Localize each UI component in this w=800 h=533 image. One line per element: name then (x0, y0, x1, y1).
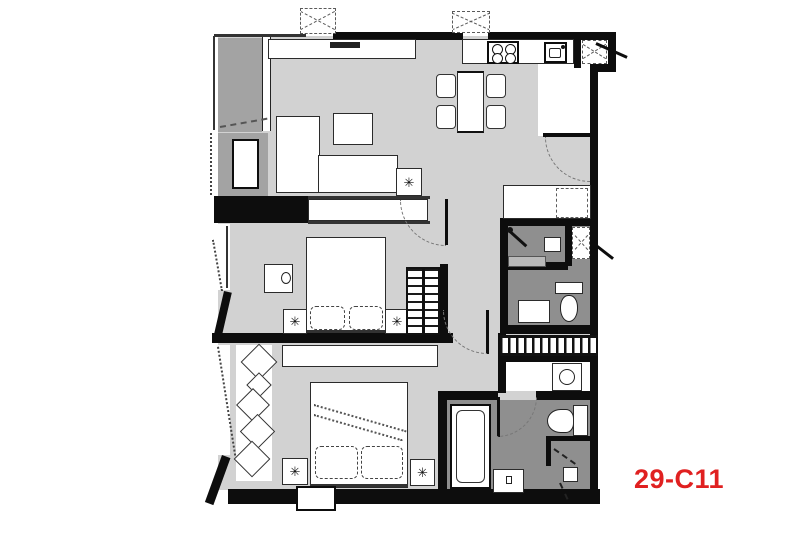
toilet2-tank (573, 405, 588, 436)
sink-mark-icon (506, 476, 512, 484)
nightstand: ✳ (282, 458, 308, 485)
plant-icon: ✳ (404, 176, 415, 189)
faucet-icon (561, 45, 565, 49)
shower-drain (563, 467, 578, 482)
nightstand: ✳ (410, 459, 435, 486)
bathroom2-sink (493, 469, 524, 493)
sink-basin-icon (549, 48, 561, 58)
laundry-ledge-grille (500, 335, 598, 356)
wall-bedroom2-bathroom2 (438, 391, 447, 491)
dining-chair (486, 105, 506, 129)
balcony-table (232, 139, 259, 189)
sofa-section-vertical (276, 116, 320, 193)
plant-icon: ✳ (392, 315, 403, 328)
balcony-railing (210, 133, 213, 195)
wall-shower2-v (546, 436, 551, 466)
burner-icon (492, 53, 503, 64)
wall-entry-left (574, 39, 581, 68)
wall-block-left (214, 196, 310, 223)
floor-plan: ✳ ✳ ✳ ✳ ✳ (0, 0, 800, 533)
toilet1-bowl (560, 295, 578, 322)
refrigerator (556, 188, 588, 218)
vanity-shelf (508, 256, 546, 267)
plant-icon: ✳ (290, 465, 301, 478)
wall-bathroom1-left (500, 221, 508, 333)
balcony-floor-upper (218, 38, 262, 132)
kitchen-sink (544, 42, 567, 63)
pillow (349, 306, 383, 330)
bathroom1-cabinet (518, 300, 550, 323)
bathroom1-door-swing-icon (572, 227, 590, 259)
rail-line-icon (422, 269, 425, 333)
dresser-bedroom1 (264, 264, 293, 293)
knob-icon (281, 272, 291, 284)
window-line-bedroom1-left (226, 226, 228, 288)
pillow (310, 306, 345, 330)
washer-door-icon (559, 369, 575, 385)
wall-shower2-h (546, 436, 592, 441)
ledge-box (296, 486, 336, 511)
side-table: ✳ (396, 168, 422, 196)
unit-label: 29-C11 (634, 464, 724, 495)
wall-ledge-bottom (498, 355, 598, 362)
ac-unit-icon (300, 8, 336, 34)
toilet1-tank (555, 282, 583, 294)
wall-bottom (228, 489, 600, 504)
wall-bathroom1-alcove (565, 221, 572, 266)
bathtub (450, 404, 491, 489)
dining-chair (436, 74, 456, 98)
wall-bathroom2-top-b (536, 391, 598, 400)
window-line-top-left (214, 34, 306, 37)
tub-basin-icon (456, 410, 485, 483)
headboard-line (306, 330, 386, 333)
nightstand: ✳ (283, 309, 307, 334)
wall-bathroom2-top-a (438, 391, 498, 400)
ac-unit-icon (452, 11, 490, 33)
bathroom1-sink (544, 237, 561, 252)
wardrobe-bedroom2 (282, 345, 438, 367)
coffee-table (333, 113, 373, 145)
sofa-section-horizontal (318, 155, 398, 193)
pillow (315, 446, 358, 479)
entry-door-swing-icon (582, 40, 607, 64)
kitchen-passage (538, 64, 590, 136)
tv (330, 42, 360, 48)
wall-bathroom1-top (500, 218, 598, 226)
stove (487, 41, 519, 64)
dining-table (457, 71, 484, 133)
shower-head-icon (507, 227, 513, 233)
burner-icon (505, 53, 516, 64)
dining-chair (486, 74, 506, 98)
dining-chair (436, 105, 456, 129)
washing-machine (552, 363, 582, 391)
pillow (361, 446, 403, 479)
plant-icon: ✳ (417, 466, 428, 479)
clothes-rail-bedroom1 (406, 267, 440, 335)
toilet2-bowl (547, 409, 574, 433)
wall-bathroom1-bottom (500, 325, 598, 334)
window-line-balcony-left (213, 36, 215, 130)
plant-icon: ✳ (290, 315, 301, 328)
